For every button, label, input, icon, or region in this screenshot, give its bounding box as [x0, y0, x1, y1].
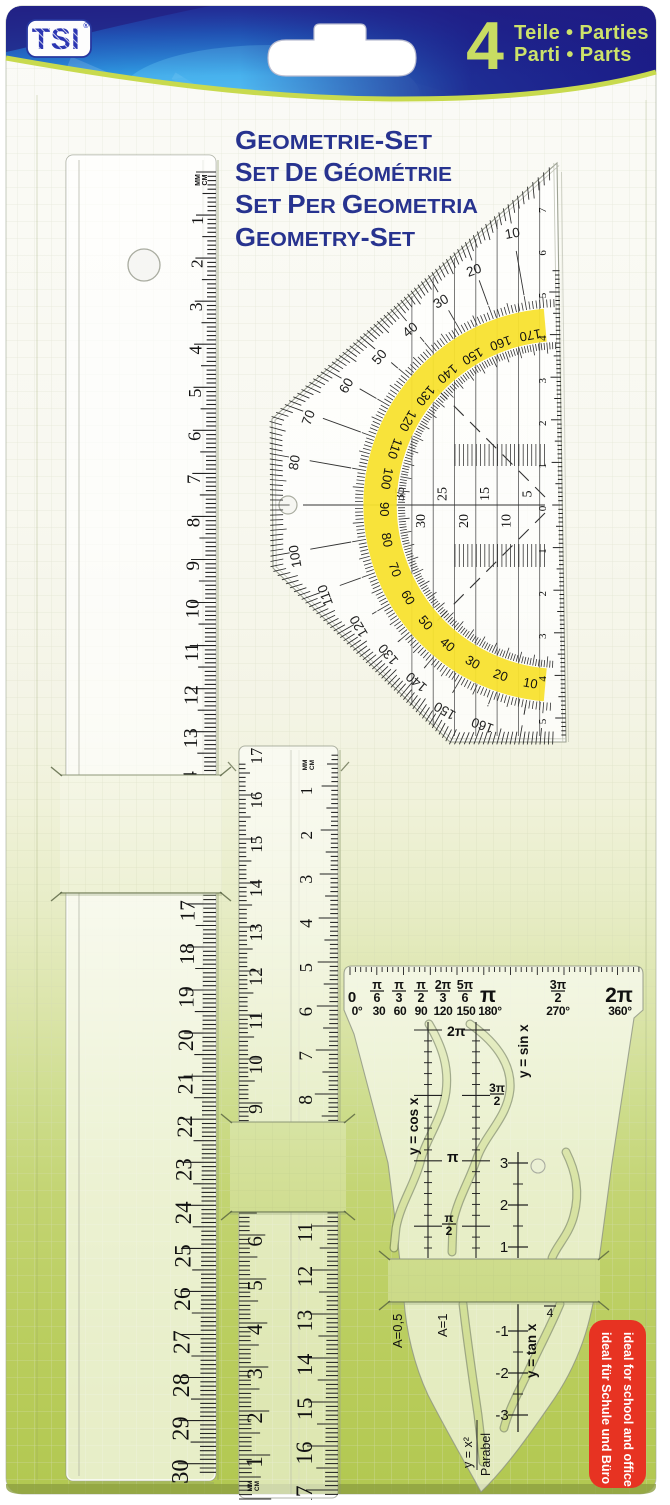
svg-text:MM: MM: [195, 174, 202, 186]
svg-text:17: 17: [176, 900, 200, 921]
svg-text:11: 11: [182, 643, 203, 662]
svg-text:20: 20: [457, 514, 472, 528]
svg-text:-1: -1: [495, 1323, 508, 1340]
svg-text:120: 120: [433, 1004, 453, 1018]
svg-text:2: 2: [446, 1224, 453, 1238]
svg-text:2: 2: [555, 991, 562, 1005]
svg-text:7: 7: [296, 1051, 317, 1061]
svg-text:CM: CM: [309, 760, 316, 770]
svg-text:y = cos x: y = cos x: [406, 1097, 421, 1155]
svg-text:π: π: [416, 978, 426, 992]
svg-text:TSI: TSI: [32, 23, 80, 56]
svg-text:14: 14: [246, 879, 266, 897]
svg-text:3: 3: [537, 377, 549, 383]
svg-text:y = x²: y = x²: [461, 1437, 475, 1468]
svg-text:2: 2: [537, 591, 549, 597]
svg-text:6: 6: [243, 1236, 267, 1246]
svg-text:π: π: [394, 978, 404, 992]
svg-text:3: 3: [242, 1368, 267, 1379]
svg-text:5: 5: [185, 389, 205, 398]
svg-text:12: 12: [293, 1266, 317, 1287]
svg-text:A=0,5: A=0,5: [390, 1314, 405, 1348]
svg-text:4: 4: [185, 345, 205, 354]
svg-text:360°: 360°: [608, 1004, 632, 1018]
svg-text:9: 9: [183, 561, 204, 571]
svg-text:2: 2: [494, 1094, 501, 1108]
svg-text:6: 6: [462, 991, 469, 1005]
svg-text:ideal für Schule und Büro: ideal für Schule und Büro: [599, 1332, 613, 1484]
svg-text:10: 10: [246, 1055, 267, 1074]
svg-text:10: 10: [504, 225, 521, 242]
svg-text:80: 80: [286, 454, 303, 471]
svg-text:0°: 0°: [352, 1004, 363, 1018]
svg-text:1: 1: [188, 216, 207, 225]
svg-text:8: 8: [183, 518, 204, 527]
svg-text:7: 7: [537, 207, 549, 213]
svg-text:150: 150: [456, 1004, 476, 1018]
svg-text:11: 11: [246, 1012, 267, 1030]
svg-text:3: 3: [296, 875, 316, 884]
svg-text:24: 24: [170, 1201, 196, 1225]
svg-text:15: 15: [478, 487, 493, 501]
svg-text:13: 13: [180, 728, 202, 748]
svg-text:23: 23: [172, 1158, 197, 1181]
svg-text:3: 3: [537, 633, 549, 639]
svg-text:180°: 180°: [478, 1004, 502, 1018]
svg-text:3: 3: [440, 991, 447, 1005]
svg-text:3: 3: [500, 1155, 508, 1172]
svg-text:13: 13: [246, 924, 266, 942]
svg-text:10: 10: [182, 599, 203, 618]
svg-text:Teile • Parties: Teile • Parties: [514, 22, 649, 44]
svg-text:7: 7: [184, 475, 205, 484]
svg-text:60: 60: [394, 1004, 407, 1018]
svg-text:8: 8: [296, 1095, 317, 1105]
svg-text:5: 5: [521, 491, 536, 498]
svg-text:15: 15: [292, 1398, 317, 1421]
svg-text:20: 20: [173, 1029, 198, 1051]
svg-text:6: 6: [374, 991, 381, 1005]
svg-text:2: 2: [500, 1197, 508, 1214]
svg-text:π: π: [444, 1211, 453, 1225]
svg-text:6: 6: [184, 432, 204, 441]
svg-text:22: 22: [172, 1115, 197, 1138]
svg-text:4: 4: [537, 335, 549, 341]
svg-text:13: 13: [293, 1310, 317, 1332]
svg-text:1: 1: [500, 1239, 508, 1256]
svg-text:27: 27: [170, 1330, 196, 1354]
svg-text:21: 21: [173, 1072, 198, 1094]
svg-text:4: 4: [466, 8, 504, 84]
svg-text:2π: 2π: [435, 978, 452, 992]
svg-text:MM: MM: [302, 760, 309, 771]
svg-text:25: 25: [436, 487, 451, 501]
svg-text:π: π: [372, 978, 382, 992]
svg-text:25: 25: [171, 1244, 197, 1267]
svg-text:Parti • Parts: Parti • Parts: [514, 44, 632, 66]
svg-text:4: 4: [243, 1324, 267, 1335]
svg-text:Parabel: Parabel: [479, 1433, 493, 1476]
svg-text:1: 1: [297, 787, 316, 795]
svg-text:2π: 2π: [447, 1023, 466, 1039]
svg-text:®: ®: [83, 22, 89, 30]
svg-text:3: 3: [186, 302, 206, 311]
svg-text:2: 2: [297, 831, 316, 840]
svg-text:ideal for school and office: ideal for school and office: [621, 1332, 635, 1487]
svg-text:5: 5: [243, 1280, 267, 1291]
svg-text:80: 80: [378, 531, 395, 548]
svg-text:2: 2: [418, 991, 425, 1005]
svg-text:270°: 270°: [546, 1004, 570, 1018]
svg-text:16: 16: [247, 792, 266, 809]
svg-text:CM: CM: [254, 1481, 261, 1491]
svg-text:14: 14: [292, 1354, 317, 1376]
svg-text:9: 9: [245, 1104, 267, 1114]
svg-text:5: 5: [296, 963, 316, 972]
svg-text:19: 19: [175, 986, 199, 1008]
svg-text:y = sin x: y = sin x: [516, 1024, 531, 1078]
svg-text:6: 6: [537, 250, 549, 256]
svg-text:5: 5: [537, 292, 549, 298]
svg-text:17: 17: [292, 1485, 318, 1500]
svg-text:2: 2: [242, 1412, 267, 1423]
svg-text:y = tan x: y = tan x: [524, 1323, 539, 1378]
svg-text:3π: 3π: [489, 1081, 505, 1095]
svg-text:3: 3: [396, 991, 403, 1005]
svg-text:12: 12: [246, 967, 266, 985]
svg-text:2: 2: [537, 421, 549, 427]
svg-text:-3: -3: [495, 1407, 508, 1424]
svg-text:29: 29: [168, 1416, 195, 1440]
svg-text:11: 11: [293, 1222, 317, 1242]
svg-text:5: 5: [537, 718, 549, 724]
svg-text:3π: 3π: [550, 978, 567, 992]
svg-text:15: 15: [247, 836, 266, 853]
svg-text:CM: CM: [202, 174, 209, 185]
svg-text:30: 30: [167, 1459, 194, 1484]
svg-text:18: 18: [175, 943, 199, 964]
svg-text:30: 30: [414, 514, 429, 528]
svg-text:16: 16: [292, 1442, 317, 1465]
svg-text:A=1: A=1: [435, 1314, 450, 1338]
svg-text:30: 30: [373, 1004, 386, 1018]
svg-text:4: 4: [537, 676, 549, 682]
svg-text:π: π: [447, 1149, 459, 1166]
svg-text:90: 90: [415, 1004, 428, 1018]
svg-text:10: 10: [499, 514, 514, 528]
svg-text:90: 90: [377, 502, 392, 516]
svg-text:1: 1: [537, 463, 549, 469]
svg-text:1: 1: [537, 548, 549, 554]
svg-text:6: 6: [296, 1007, 317, 1016]
svg-text:4: 4: [296, 919, 316, 928]
svg-text:1: 1: [241, 1456, 267, 1468]
svg-text:5π: 5π: [457, 978, 474, 992]
svg-text:0: 0: [537, 505, 549, 511]
svg-text:12: 12: [180, 685, 202, 705]
svg-text:-2: -2: [495, 1365, 508, 1382]
svg-text:4: 4: [547, 1306, 554, 1320]
svg-text:26: 26: [170, 1287, 196, 1311]
svg-text:17: 17: [247, 748, 266, 765]
svg-text:2: 2: [188, 259, 207, 268]
svg-text:28: 28: [169, 1373, 195, 1397]
svg-text:MM: MM: [247, 1481, 254, 1492]
